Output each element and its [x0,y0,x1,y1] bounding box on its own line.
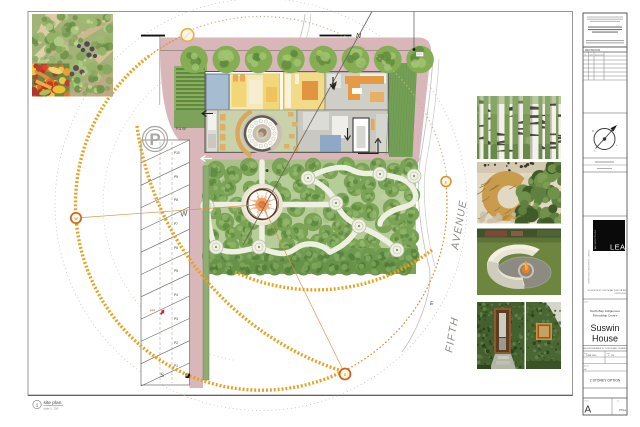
svg-text:N: N [592,130,594,133]
svg-text:P6: P6 [174,246,178,250]
svg-text:date: date [590,53,594,56]
svg-text:A: A [585,405,592,416]
svg-text:exit: exit [150,308,155,312]
svg-text:P8: P8 [174,198,178,202]
svg-text:AVENUE: AVENUE [449,199,470,252]
svg-text:P01.a: P01.a [619,408,626,412]
svg-text:North Bay Indigenous: North Bay Indigenous [590,309,620,313]
svg-text:REVISIONS: REVISIONS [585,48,600,52]
svg-text:drawn: drawn [584,366,589,368]
svg-text:P: P [149,130,160,149]
svg-text:2 STOREY OPTION: 2 STOREY OPTION [590,379,621,383]
svg-text:P7: P7 [174,222,178,226]
svg-text:description: description [595,53,604,56]
svg-text:E: E [430,301,434,307]
svg-text:101 WORTH ST., NORTH BAY (ON): 101 WORTH ST., NORTH BAY (ON) P1B 3B4 [587,289,626,292]
svg-text:P1: P1 [174,364,178,368]
svg-text:LEA: LEA [610,243,625,252]
svg-text:client: client [584,301,589,304]
svg-text:Suswin: Suswin [590,323,619,333]
svg-text:P2: P2 [174,341,178,345]
svg-text:Friendship Centre: Friendship Centre [593,314,618,318]
svg-text:scale 1 : 250: scale 1 : 250 [44,407,59,411]
svg-text:P10: P10 [174,151,180,155]
svg-text:P4: P4 [174,293,178,297]
svg-text:JUNE 2020: JUNE 2020 [586,355,597,357]
svg-text:480 FIFTH AVENUE W., NORTH BAY: 480 FIFTH AVENUE W., NORTH BAY, ONTARIO [583,347,627,350]
svg-text:1: 1 [36,402,39,407]
svg-text:sheet: sheet [584,400,589,403]
svg-text:P11 BF: P11 BF [176,127,186,131]
svg-text:site plan: site plan [44,400,62,406]
svg-text:P5: P5 [174,269,178,273]
svg-text:House: House [592,334,618,344]
svg-text:LORNE KELLY ARCHITECT + ASSOC: LORNE KELLY ARCHITECT + ASSOC [588,249,591,284]
svg-text:705.555.0155: 705.555.0155 [614,293,626,295]
svg-text:P3: P3 [174,317,178,321]
svg-text:FIFTH: FIFTH [443,316,461,354]
svg-text:ARCHITECTS INC: ARCHITECTS INC [594,229,597,249]
svg-text:S: S [160,373,165,380]
svg-text:P9: P9 [174,175,178,179]
svg-text:1 : 250: 1 : 250 [608,355,615,357]
